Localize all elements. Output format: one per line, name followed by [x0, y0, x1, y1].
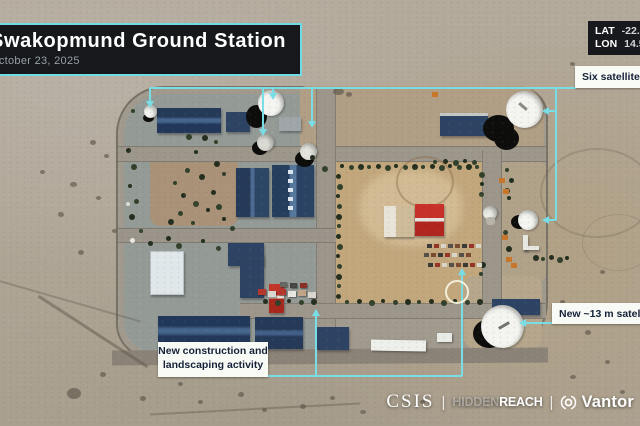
- tree: [194, 150, 198, 154]
- truck: [268, 291, 276, 297]
- truck: [298, 290, 306, 296]
- separator: |: [441, 394, 445, 411]
- tree: [349, 165, 354, 170]
- rock: [346, 92, 352, 97]
- tree: [191, 221, 195, 225]
- tree: [275, 300, 281, 306]
- tree: [336, 274, 342, 280]
- tree: [178, 211, 183, 216]
- tree: [448, 164, 452, 168]
- lon-value: 14.54: [624, 38, 640, 51]
- tree: [394, 164, 398, 168]
- building: [150, 251, 184, 295]
- vehicle: [445, 253, 450, 257]
- rock: [600, 270, 605, 274]
- tank: [126, 202, 130, 206]
- tree: [433, 160, 437, 164]
- vehicle: [431, 253, 436, 257]
- truck: [278, 289, 286, 295]
- tree: [168, 219, 174, 225]
- tree: [479, 192, 484, 197]
- tree: [405, 299, 411, 305]
- tree: [287, 299, 291, 303]
- tree: [322, 166, 328, 172]
- equipment: [511, 263, 517, 268]
- vantor-logo: Vantor: [560, 393, 634, 412]
- vehicle: [477, 263, 482, 267]
- tree: [337, 284, 341, 288]
- vehicle: [463, 263, 468, 267]
- tree: [173, 181, 177, 185]
- label-six-dishes: Six satellite dishes: [575, 66, 640, 88]
- vehicle: [466, 253, 471, 257]
- building: [523, 246, 539, 250]
- vehicle: [462, 244, 467, 248]
- tree: [337, 184, 343, 190]
- tree: [541, 257, 545, 261]
- vehicle: [456, 263, 461, 267]
- rock: [300, 404, 306, 409]
- tree: [475, 165, 479, 169]
- tree: [472, 160, 477, 165]
- building: [384, 206, 414, 237]
- rock: [140, 396, 146, 401]
- tree: [337, 244, 343, 250]
- tree: [222, 217, 226, 221]
- tree: [533, 255, 539, 261]
- vantor-aperture-icon: [560, 394, 577, 411]
- tree: [441, 300, 447, 306]
- label-construction: New construction and landscaping activit…: [158, 342, 268, 377]
- building: [415, 204, 444, 236]
- coordinates-box: LAT -22.57 LON 14.54: [588, 21, 640, 55]
- building: [236, 168, 269, 217]
- tree: [185, 168, 190, 173]
- tree: [222, 172, 226, 176]
- truck: [280, 282, 287, 287]
- tree: [443, 159, 448, 164]
- tree: [148, 241, 153, 246]
- tree: [202, 135, 208, 141]
- tree: [376, 164, 381, 169]
- annotated-satellite-image: Swakopmund Ground Station October 23, 20…: [0, 0, 640, 426]
- rock: [360, 410, 366, 414]
- tree: [507, 196, 511, 200]
- rock: [262, 408, 267, 412]
- tree: [263, 299, 268, 304]
- vehicle: [441, 244, 446, 248]
- tree: [311, 299, 317, 305]
- building: [279, 117, 301, 131]
- longitude-row: LON 14.54: [595, 38, 640, 51]
- hiddenreach-hidden-text: HIDDEN: [452, 395, 499, 409]
- rock: [178, 382, 183, 386]
- tank: [130, 238, 135, 243]
- tree: [211, 190, 216, 195]
- truck: [437, 333, 452, 342]
- rock: [100, 372, 106, 377]
- satellite-dish: [144, 105, 157, 118]
- hiddenreach-reach-text: REACH: [499, 395, 542, 409]
- tree: [336, 194, 340, 198]
- tree: [453, 160, 459, 166]
- tree: [206, 208, 210, 212]
- tree: [176, 243, 182, 249]
- building-roof-marks: [288, 170, 293, 214]
- building: [317, 327, 349, 350]
- desert-ring: [582, 214, 640, 271]
- tree: [463, 159, 467, 163]
- image-date: October 23, 2025: [0, 55, 292, 67]
- rock: [104, 154, 109, 158]
- tree: [403, 165, 408, 170]
- tree: [216, 204, 222, 210]
- hiddenreach-logo: HIDDENREACH: [452, 395, 542, 409]
- vehicle: [470, 263, 475, 267]
- satellite-dish: [257, 134, 274, 151]
- tree: [214, 140, 218, 144]
- tree: [421, 165, 425, 169]
- tree: [412, 164, 418, 170]
- tree: [337, 204, 342, 209]
- dish-base: [486, 217, 495, 225]
- tree: [216, 246, 221, 251]
- tree: [193, 201, 199, 207]
- rock: [58, 212, 64, 217]
- tree: [337, 224, 341, 228]
- tree: [337, 264, 342, 269]
- vehicle: [455, 244, 460, 248]
- tree: [336, 234, 341, 239]
- rock: [605, 360, 610, 364]
- tree: [439, 165, 445, 171]
- rock: [333, 88, 344, 95]
- tree: [480, 182, 484, 186]
- equipment: [499, 178, 505, 183]
- vehicle: [424, 253, 429, 257]
- tree: [139, 229, 143, 233]
- page-title: Swakopmund Ground Station: [0, 30, 292, 53]
- vehicle: [448, 244, 453, 248]
- lat-label: LAT: [595, 25, 615, 38]
- dish-shadow: [494, 127, 519, 150]
- label-construction-line2: landscaping activity: [158, 358, 268, 372]
- tree: [505, 168, 509, 172]
- rock: [198, 400, 203, 404]
- building: [157, 108, 221, 133]
- tree: [369, 300, 375, 306]
- trailer: [371, 340, 426, 352]
- latitude-row: LAT -22.57: [595, 25, 640, 38]
- lat-value: -22.57: [622, 25, 640, 38]
- tree: [457, 165, 462, 170]
- tree: [129, 214, 135, 220]
- separator: |: [550, 394, 554, 411]
- tree: [131, 109, 135, 113]
- tree: [166, 236, 171, 241]
- tree: [126, 148, 131, 153]
- tree: [393, 300, 398, 305]
- csis-logo: CSIS: [386, 391, 434, 413]
- tree: [199, 174, 205, 180]
- satellite-dish: [518, 210, 538, 230]
- vehicle: [452, 253, 457, 257]
- tree: [336, 254, 340, 258]
- title-banner: Swakopmund Ground Station October 23, 20…: [0, 23, 302, 76]
- equipment: [502, 235, 508, 240]
- vehicle: [428, 263, 433, 267]
- tree: [134, 199, 139, 204]
- tree: [430, 164, 435, 169]
- lon-label: LON: [595, 38, 617, 51]
- dirt-patch: [150, 156, 238, 226]
- truck: [308, 292, 316, 298]
- vehicle: [449, 263, 454, 267]
- rock: [40, 170, 45, 174]
- tree: [417, 300, 421, 304]
- truck: [290, 283, 297, 288]
- tree: [453, 299, 457, 303]
- rock: [112, 229, 117, 233]
- tree: [230, 226, 235, 231]
- logo-footer: CSIS | HIDDENREACH | Vantor: [386, 391, 634, 413]
- rock: [330, 396, 335, 400]
- vantor-text: Vantor: [581, 393, 634, 412]
- tree: [345, 300, 349, 304]
- equipment: [506, 257, 512, 262]
- rock: [96, 196, 101, 200]
- tree: [310, 155, 315, 160]
- tree: [336, 174, 341, 179]
- equipment: [503, 189, 509, 194]
- tree: [549, 255, 554, 260]
- tree: [565, 256, 569, 260]
- tree: [477, 299, 483, 305]
- desert-track: [150, 403, 360, 416]
- tree: [186, 134, 192, 140]
- tree: [557, 257, 563, 263]
- tree: [181, 193, 186, 198]
- tree: [214, 161, 220, 167]
- tree: [479, 172, 485, 178]
- tree: [465, 300, 470, 305]
- rock: [78, 250, 84, 255]
- building: [440, 113, 488, 136]
- tree: [466, 164, 472, 170]
- tree: [357, 299, 362, 304]
- satellite-dish: [258, 90, 284, 116]
- label-new-dish: New ~13 m satellite dish: [552, 303, 640, 324]
- rock: [67, 388, 81, 399]
- rock: [570, 375, 576, 379]
- label-new-dish-text: New ~13 m satellite dish: [559, 308, 640, 320]
- tree: [429, 299, 434, 304]
- tree: [358, 164, 364, 170]
- label-construction-line1: New construction and: [158, 344, 268, 358]
- rock: [238, 392, 244, 397]
- tree: [479, 272, 483, 276]
- rock: [90, 140, 96, 145]
- tree: [509, 178, 514, 183]
- building: [272, 165, 314, 217]
- vehicle: [476, 244, 481, 248]
- tree: [201, 239, 205, 243]
- tree: [506, 246, 512, 252]
- tree: [336, 294, 341, 299]
- vehicle: [435, 263, 440, 267]
- tree: [336, 214, 342, 220]
- vehicle: [434, 244, 439, 248]
- vehicle: [438, 253, 443, 257]
- tree: [381, 299, 385, 303]
- tree: [128, 184, 132, 188]
- truck: [288, 291, 296, 297]
- truck: [300, 283, 307, 288]
- truck: [258, 289, 266, 295]
- label-six-dishes-text: Six satellite dishes: [582, 71, 640, 83]
- tree: [299, 300, 304, 305]
- vehicle: [459, 253, 464, 257]
- equipment: [432, 92, 438, 97]
- tree: [367, 165, 371, 169]
- tree: [340, 164, 344, 168]
- vehicle: [427, 244, 432, 248]
- rock: [585, 330, 591, 335]
- tree: [131, 164, 137, 170]
- vehicle: [442, 263, 447, 267]
- rock: [70, 182, 77, 187]
- vehicle: [469, 244, 474, 248]
- tree: [385, 165, 391, 171]
